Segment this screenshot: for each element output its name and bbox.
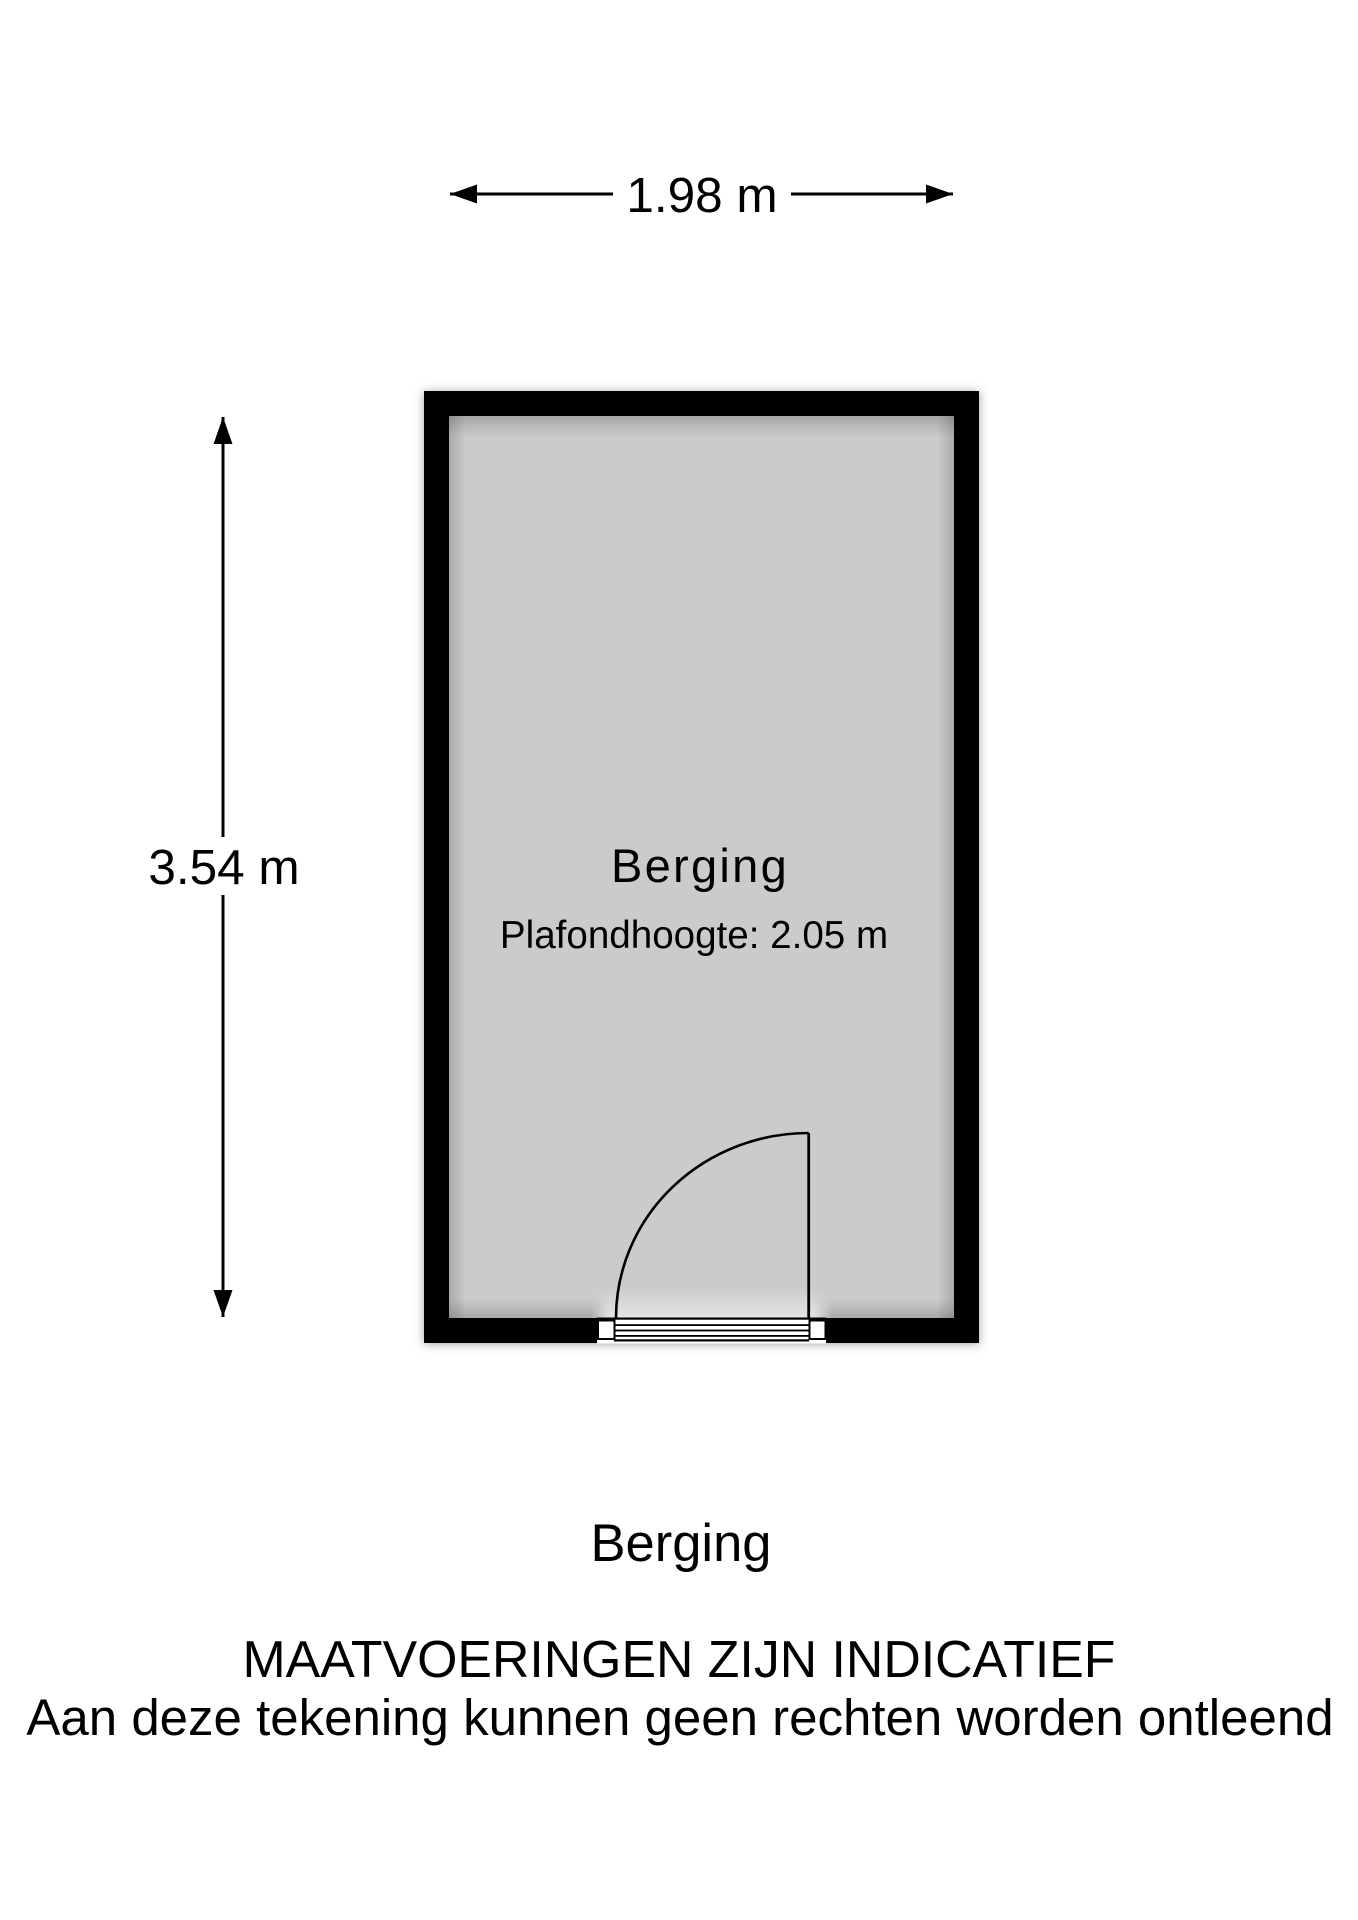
svg-text:3.54 m: 3.54 m [148,840,299,895]
svg-text:1.98 m: 1.98 m [626,168,777,223]
svg-text:MAATVOERINGEN ZIJN INDICATIEF: MAATVOERINGEN ZIJN INDICATIEF [243,1630,1116,1688]
svg-text:Berging: Berging [591,1514,772,1573]
svg-text:Berging: Berging [611,839,789,892]
svg-text:Aan deze tekening kunnen geen: Aan deze tekening kunnen geen rechten wo… [26,1689,1333,1746]
svg-text:Plafondhoogte: 2.05 m: Plafondhoogte: 2.05 m [500,914,888,957]
